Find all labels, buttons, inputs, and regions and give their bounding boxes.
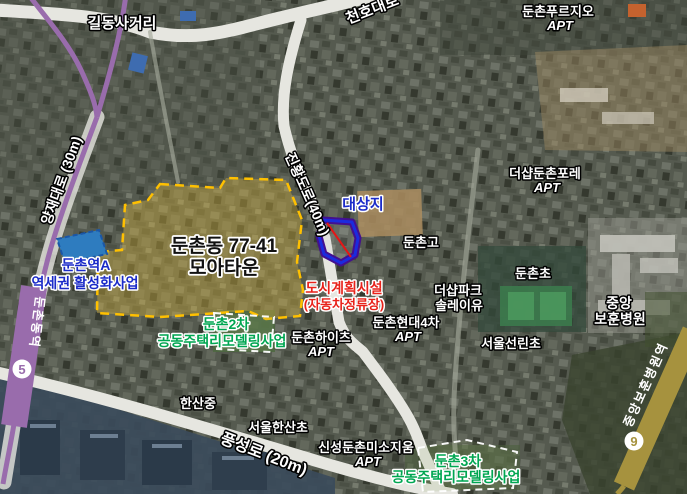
label-remodel2-line2: 공동주택리모델링사업 [158,333,287,349]
label-remodel3-line2: 공동주택리모델링사업 [392,469,521,485]
label-remodel3-line1: 둔촌3차 [435,453,482,469]
label-hospital-line1: 중앙 [606,295,632,311]
label-heights-line2: APT [307,344,335,359]
blue-roof-building [180,11,196,21]
map-canvas: 둔촌동역 5 중앙보훈병원역 9 길동사거리 천호대로 양재대로 (30m) 진… [0,0,687,494]
zone-fore-construction [535,45,687,152]
label-moatown-line1: 둔촌동 77-41 [171,235,278,257]
label-moatown-line2: 모아타운 [189,257,259,279]
label-facility-line1: 도시계획시설 [305,280,382,296]
label-dunchon-high: 둔촌고 [403,235,439,250]
label-heights-line1: 둔촌하이츠 [291,330,351,345]
label-dunchon-elem: 둔촌초 [515,266,551,281]
label-gildong-intersection: 길동사거리 [87,15,156,32]
tower-roof [90,434,118,438]
building [602,112,654,124]
label-hospital-line2: 보훈병원 [594,311,646,327]
tower-roof [152,444,182,448]
label-purgio-line1: 둔촌푸르지오 [522,4,594,19]
label-misozium-line1: 신성둔촌미소지움 [318,440,414,455]
label-hansan-elem: 서울한산초 [248,420,308,435]
tennis-court [540,292,566,320]
tower-block [20,420,60,475]
label-purgio-line2: APT [546,18,574,33]
label-fore-line1: 더샵둔촌포레 [509,166,581,181]
label-station-a-line1: 둔촌역A [62,257,111,273]
label-sunrin-elem: 서울선린초 [481,336,541,351]
orange-roof-building [628,4,646,17]
hospital-building [640,258,678,273]
label-misozium-line2: APT [354,454,382,469]
hospital-building [600,235,675,252]
label-facility-line2: (자동차정류장) [304,297,384,312]
line9-badge-number: 9 [630,434,637,449]
label-parc-line1: 더샵파크 [434,283,482,298]
label-station-a-line2: 역세권 활성화사업 [32,275,139,291]
label-hyundai4-line1: 둔촌현대4차 [372,315,439,330]
label-hansan-mid: 한산중 [180,396,216,411]
label-parc-line2: 솔레이유 [435,298,483,313]
label-fore-line2: APT [533,180,561,195]
label-remodel2-line1: 둔촌2차 [203,316,250,332]
label-target-site: 대상지 [342,196,383,213]
label-hyundai4-line2: APT [394,329,422,344]
tennis-court [508,292,534,320]
building [560,88,608,102]
satellite-map: 둔촌동역 5 중앙보훈병원역 9 길동사거리 천호대로 양재대로 (30m) 진… [0,0,687,494]
tower-roof [30,424,56,428]
line5-badge-number: 5 [18,362,25,377]
